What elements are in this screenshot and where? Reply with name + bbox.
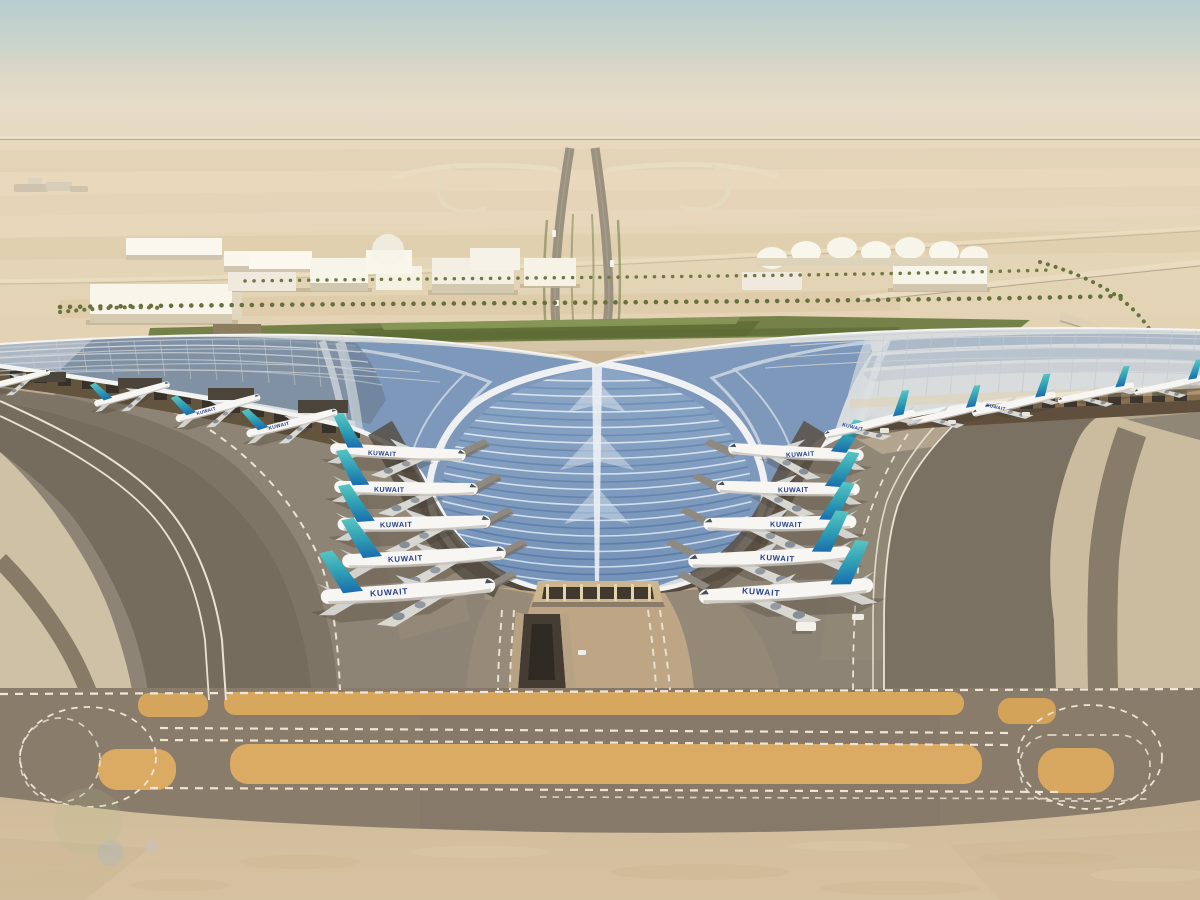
- svg-text:KUWAIT: KUWAIT: [368, 450, 397, 458]
- svg-text:KUWAIT: KUWAIT: [380, 520, 413, 530]
- svg-text:KUWAIT: KUWAIT: [786, 451, 815, 459]
- svg-text:KUWAIT: KUWAIT: [770, 520, 803, 530]
- svg-text:KUWAIT: KUWAIT: [374, 487, 405, 495]
- svg-text:KUWAIT: KUWAIT: [760, 553, 795, 564]
- svg-text:KUWAIT: KUWAIT: [778, 487, 809, 495]
- svg-text:KUWAIT: KUWAIT: [388, 553, 423, 564]
